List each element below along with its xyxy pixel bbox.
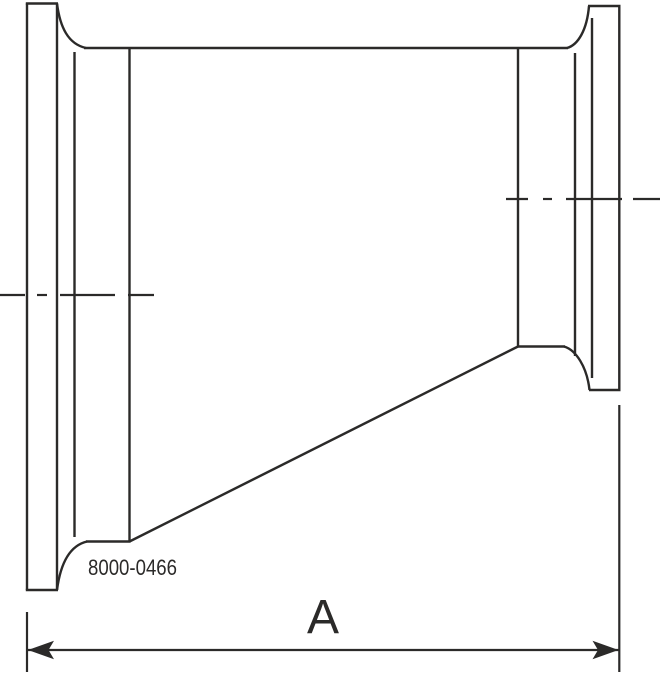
- dimension-a-label: A: [307, 591, 339, 644]
- drawing-page: 8000-0466 A: [0, 0, 660, 674]
- eccentric-reducer-technical-drawing: 8000-0466 A: [0, 0, 660, 674]
- part-number-label: 8000-0466: [88, 555, 177, 580]
